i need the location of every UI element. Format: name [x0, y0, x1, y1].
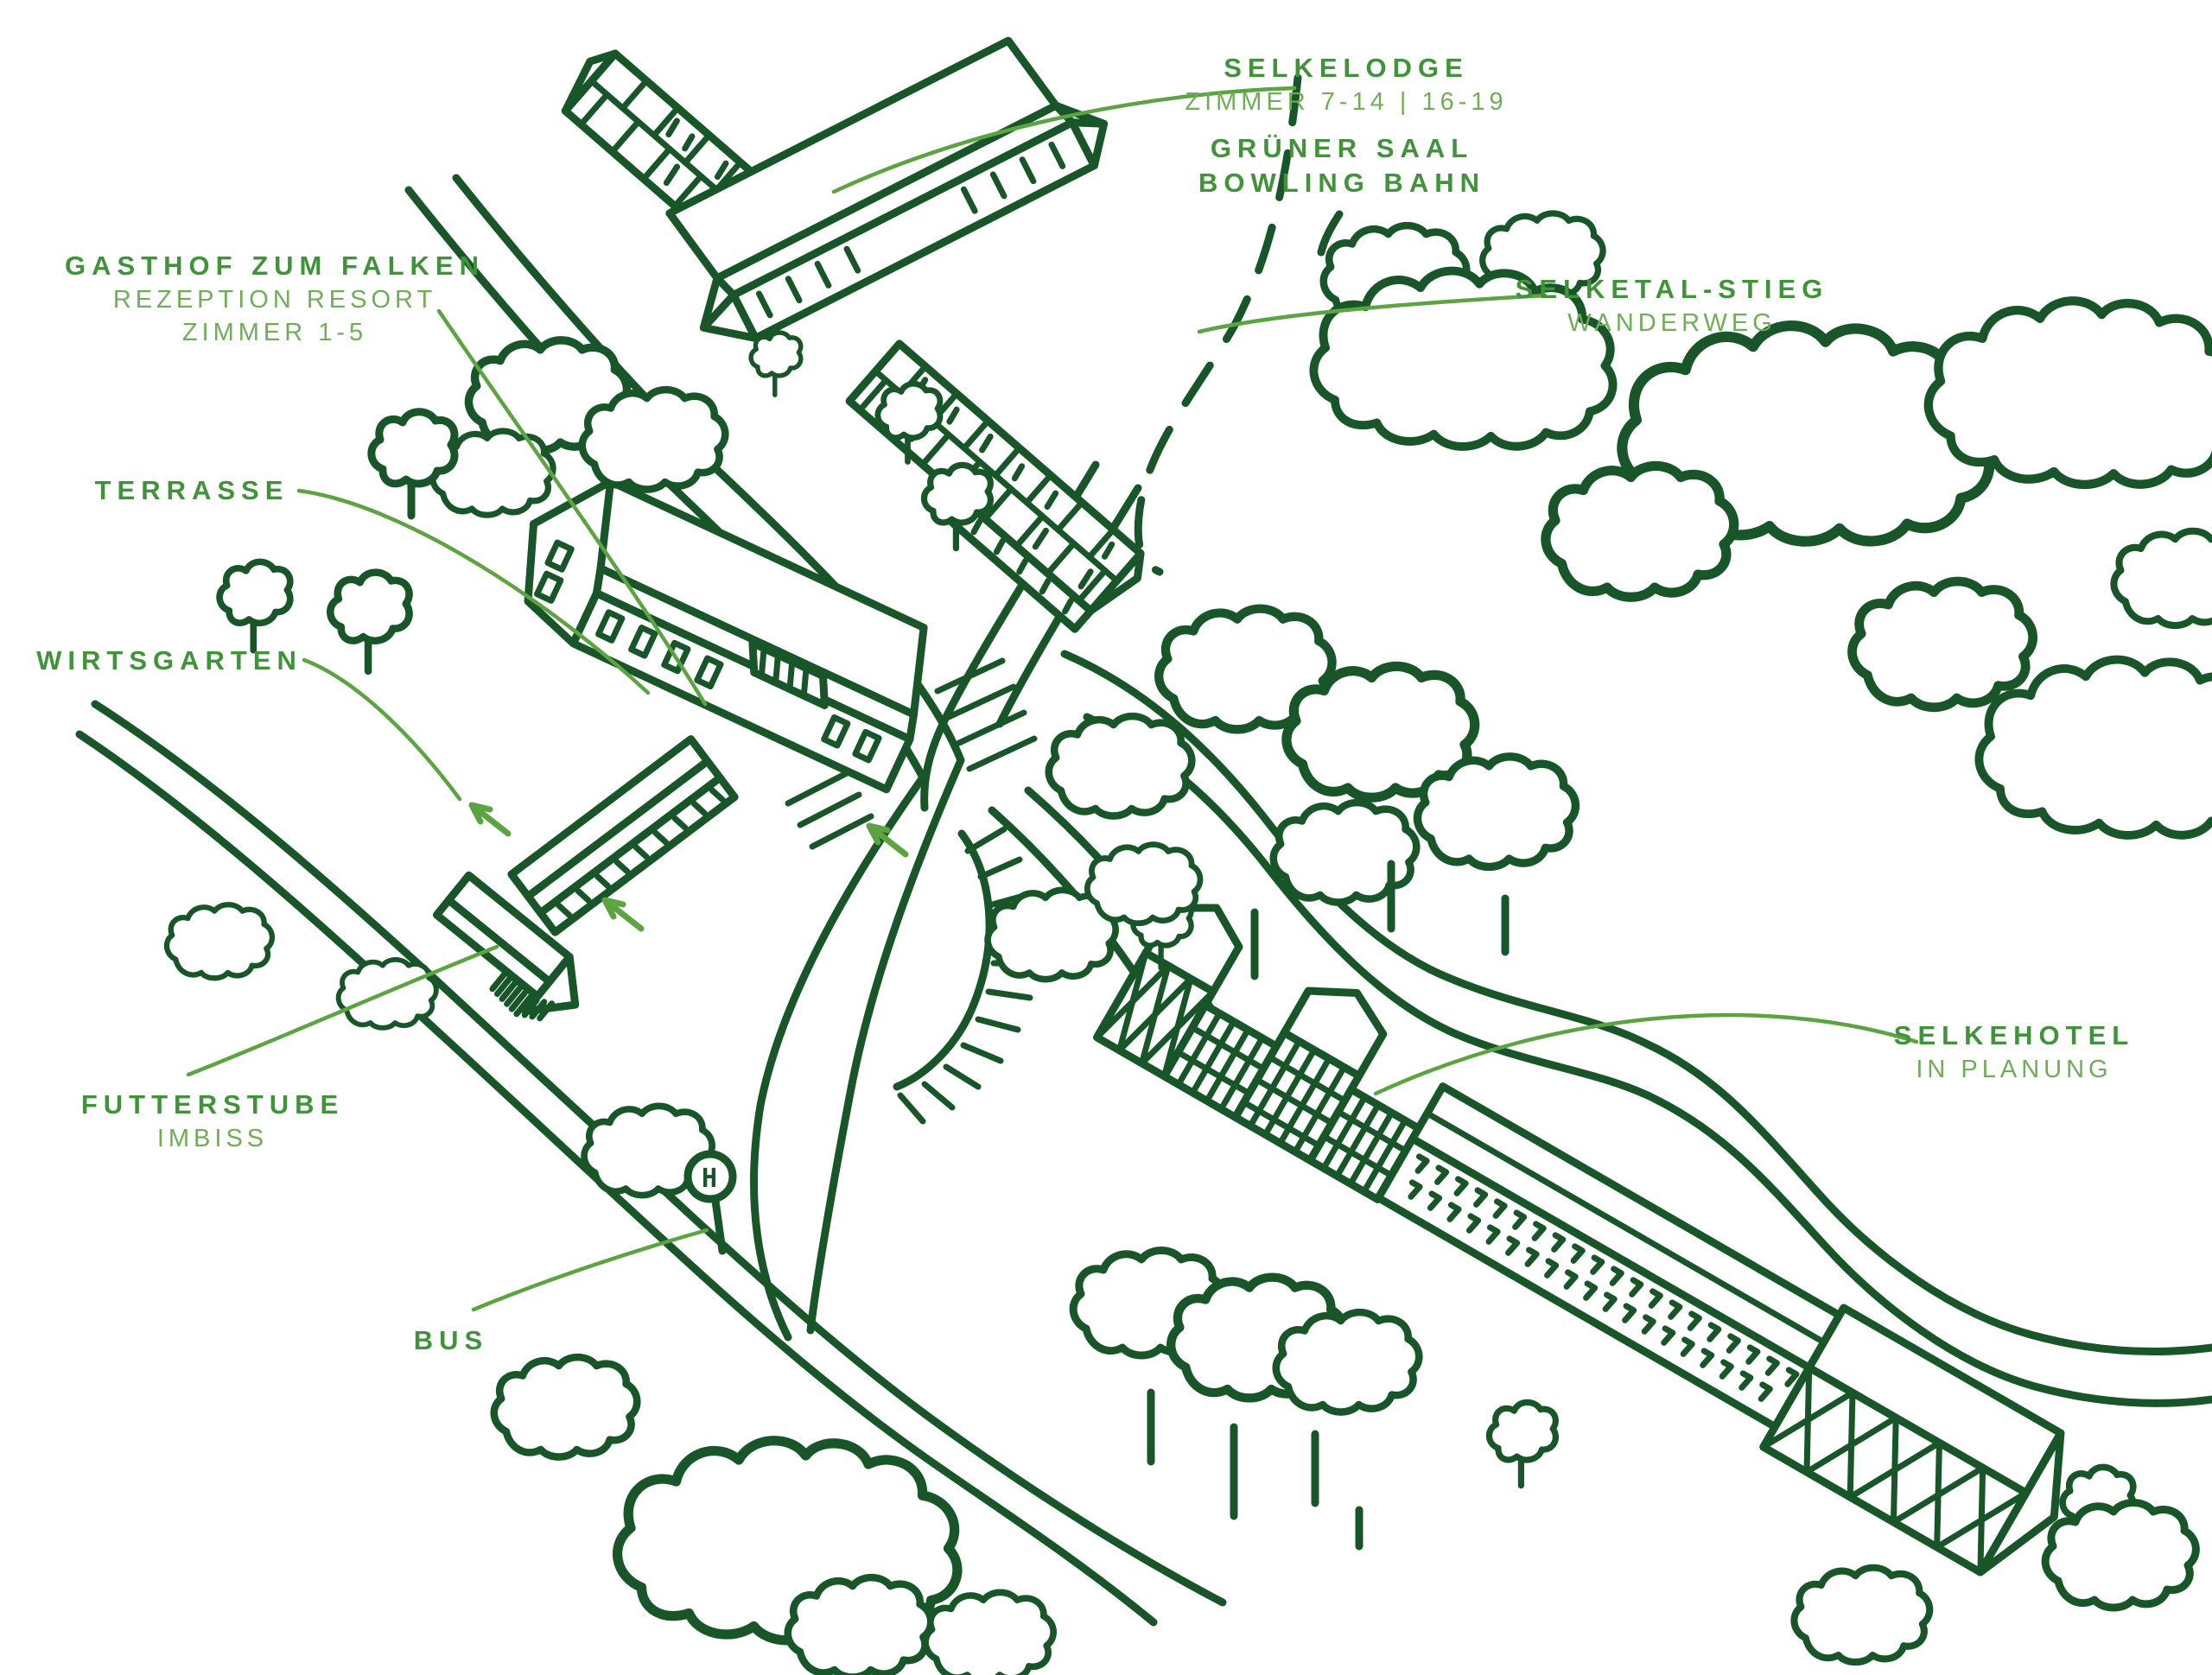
label-terrasse: TERRASSE [95, 473, 289, 508]
gasthof-rooms: ZIMMER 1-5 [65, 316, 485, 349]
futterstube-subtitle: IMBISS [81, 1122, 344, 1155]
arrow-icon [472, 805, 508, 834]
terrasse-title: TERRASSE [95, 473, 289, 508]
label-gruener-saal: GRÜNER SAAL BOWLING BAHN [1198, 131, 1485, 200]
label-wirtsgarten: WIRTSGARTEN [36, 644, 302, 678]
resort-site-map: H SELKELODGE ZIMMER 7-14 | 16-19 GRÜNER … [0, 0, 2212, 1675]
selkelodge-rooms: ZIMMER 7-14 | 16-19 [1185, 86, 1507, 118]
gasthof-building [420, 460, 955, 1039]
selkehotel-title: SELKEHOTEL [1894, 1018, 2134, 1053]
selketal-subtitle: WANDERWEG [1516, 307, 1829, 339]
label-gasthof: GASTHOF ZUM FALKEN REZEPTION RESORT ZIMM… [65, 249, 485, 349]
label-futterstube: FUTTERSTUBE IMBISS [81, 1088, 344, 1155]
selkehotel-subtitle: IN PLANUNG [1894, 1053, 2134, 1086]
selkehotel-building [1086, 889, 2108, 1590]
selkelodge-title: SELKELODGE [1185, 51, 1507, 86]
label-selkelodge: SELKELODGE ZIMMER 7-14 | 16-19 [1185, 51, 1507, 118]
selketal-title: SELKETAL-STIEG [1516, 272, 1829, 307]
wirtsgarten-title: WIRTSGARTEN [36, 644, 302, 678]
arrow-icon [605, 900, 641, 929]
bus-title: BUS [414, 1323, 488, 1358]
label-selketal-stieg: SELKETAL-STIEG WANDERWEG [1516, 272, 1829, 339]
gasthof-title: GASTHOF ZUM FALKEN [65, 249, 485, 283]
bus-stop-glyph: H [702, 1164, 717, 1194]
gruener-saal-line1: GRÜNER SAAL [1198, 131, 1485, 166]
gasthof-reception: REZEPTION RESORT [65, 283, 485, 316]
gruener-saal-line2: BOWLING BAHN [1198, 166, 1485, 200]
futterstube-title: FUTTERSTUBE [81, 1088, 344, 1122]
label-selkehotel: SELKEHOTEL IN PLANUNG [1894, 1018, 2134, 1086]
label-bus: BUS [414, 1323, 488, 1358]
